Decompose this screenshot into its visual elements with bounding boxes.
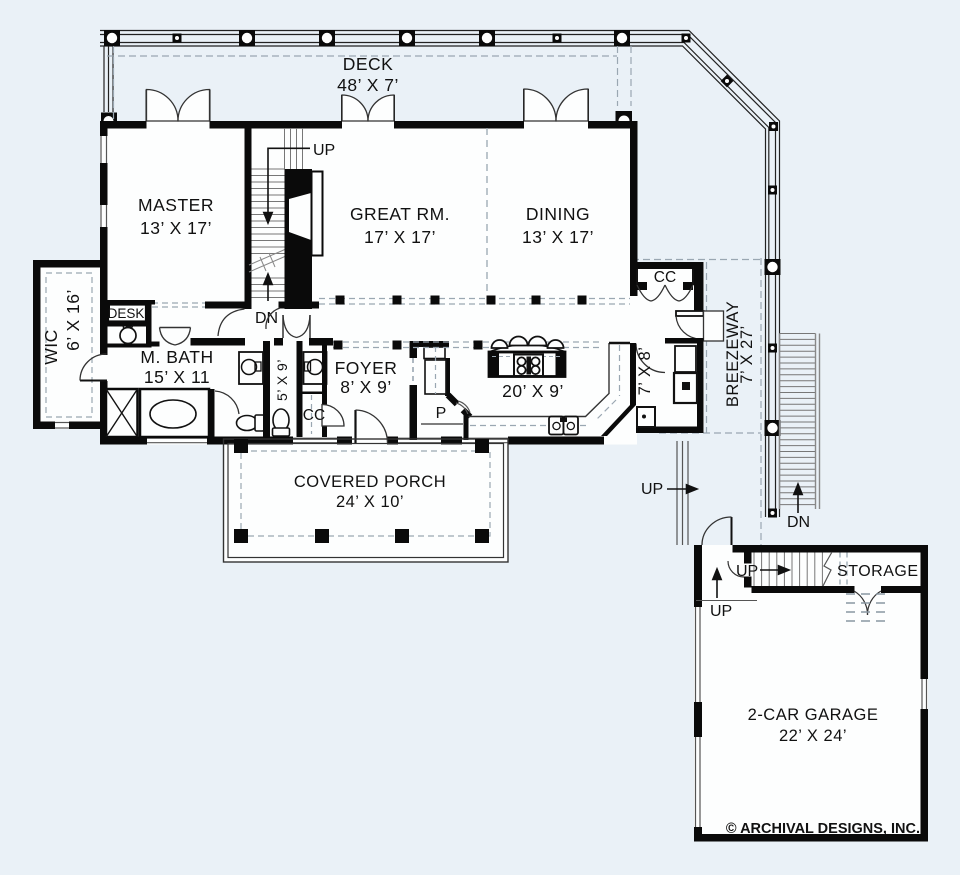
svg-text:CC: CC	[654, 269, 676, 286]
svg-text:8’ X 9’: 8’ X 9’	[340, 377, 392, 397]
svg-text:FOYER: FOYER	[335, 358, 398, 378]
svg-text:2-CAR GARAGE: 2-CAR GARAGE	[748, 706, 879, 724]
svg-text:5’ X 9’: 5’ X 9’	[274, 359, 290, 401]
svg-text:24’ X 10’: 24’ X 10’	[336, 493, 404, 511]
svg-text:7’ X 8’: 7’ X 8’	[636, 347, 654, 396]
svg-text:STORAGE: STORAGE	[837, 563, 918, 580]
svg-text:20’ X 9’: 20’ X 9’	[502, 381, 564, 401]
svg-text:15’ X 11: 15’ X 11	[144, 367, 210, 387]
svg-text:DINING: DINING	[526, 204, 590, 224]
svg-text:GREAT RM.: GREAT RM.	[350, 204, 450, 224]
svg-text:17’ X 17’: 17’ X 17’	[364, 227, 436, 247]
svg-text:6’ X 16’: 6’ X 16’	[63, 289, 83, 351]
svg-text:DESK: DESK	[108, 306, 145, 321]
svg-text:22’ X 24’: 22’ X 24’	[779, 727, 847, 745]
svg-text:UP: UP	[313, 142, 335, 159]
svg-text:13’ X 17’: 13’ X 17’	[522, 227, 594, 247]
svg-text:DECK: DECK	[343, 54, 394, 74]
svg-text:13’ X 17’: 13’ X 17’	[140, 218, 212, 238]
svg-text:UP: UP	[710, 603, 732, 620]
svg-text:7’ X 27’: 7’ X 27’	[738, 325, 756, 383]
svg-text:P: P	[436, 405, 447, 422]
svg-text:M. BATH: M. BATH	[140, 347, 213, 367]
svg-text:CC: CC	[303, 407, 325, 424]
svg-text:48’ X 7’: 48’ X 7’	[337, 75, 399, 95]
svg-text:© ARCHIVAL DESIGNS, INC.: © ARCHIVAL DESIGNS, INC.	[726, 821, 920, 837]
svg-text:DN: DN	[787, 514, 810, 531]
svg-text:UP: UP	[736, 563, 758, 580]
svg-text:WIC: WIC	[41, 329, 61, 365]
svg-text:COVERED PORCH: COVERED PORCH	[294, 473, 446, 491]
svg-text:UP: UP	[641, 481, 663, 498]
svg-text:MASTER: MASTER	[138, 195, 214, 215]
